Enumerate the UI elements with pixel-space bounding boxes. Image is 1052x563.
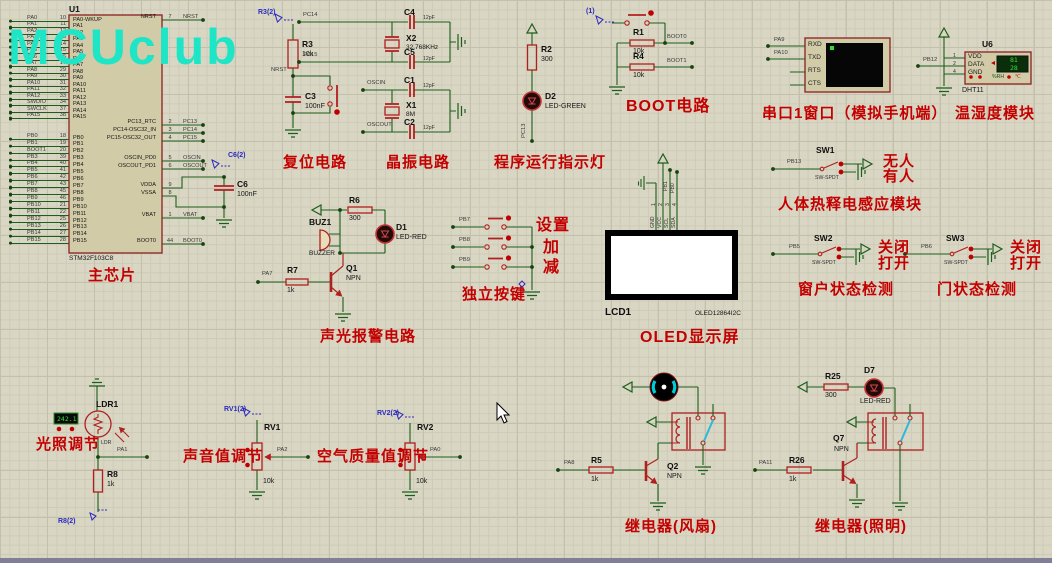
pin-number: 22	[60, 209, 66, 215]
r1-ref: R1	[633, 28, 644, 37]
pin-name-label: PB5	[73, 169, 84, 175]
pir-state-nobody: 无人	[883, 154, 915, 169]
rv2-probe-label: RV2(2)	[377, 410, 399, 417]
mcu-pin-name: PB12	[73, 218, 135, 225]
pa7-net: PA7	[262, 272, 273, 278]
pin-number: 27	[60, 230, 66, 236]
pin-net-label: PB1	[27, 140, 38, 146]
d1-ref: D1	[396, 223, 407, 232]
rv1-ref: RV1	[264, 423, 280, 432]
sw1-ref: SW1	[816, 146, 834, 155]
d1-value: LED-RED	[396, 234, 427, 241]
pa2-net: PA2	[277, 448, 288, 454]
nrst-net-label: NRST	[271, 68, 287, 74]
pin-net-label: PB10	[27, 202, 41, 208]
pb7-net: PB7	[459, 218, 470, 224]
buz1-part: BUZZER	[309, 251, 335, 258]
pin-number: 28	[60, 237, 66, 243]
pin-name-label: PB15	[73, 238, 87, 244]
c6-ref: C6	[237, 180, 248, 189]
ldr-reading: 242.1	[57, 416, 77, 423]
window-caption: 窗户状态检测	[798, 282, 894, 297]
r3-ref: R3	[302, 40, 313, 49]
pin-net-label: PB14	[27, 230, 41, 236]
mcu-right-pin-row[interactable]: PC14-OSC32_IN 3 PC14	[96, 125, 226, 133]
d2-ref: D2	[545, 92, 556, 101]
pin-name-label: PC15-OSC32_OUT	[96, 135, 156, 141]
pc15-net: PC15	[303, 53, 318, 59]
pin-name-label: PB6	[73, 176, 84, 182]
rv1-value: 10k	[263, 478, 274, 485]
dht-pin-vdd: VDD	[968, 54, 982, 61]
pin-net-label: PB5	[27, 167, 38, 173]
r6-value: 300	[349, 215, 361, 222]
pb8-net: PB8	[459, 238, 470, 244]
window-edge	[0, 558, 1052, 563]
pin-net-label: OSCOUT	[183, 163, 207, 169]
watermark-logo: MCUclub	[8, 18, 239, 76]
mcu-part: STM32F103C8	[69, 256, 113, 263]
pin-number: 26	[60, 223, 66, 229]
r4-ref: R4	[633, 52, 644, 61]
serial-pin-txd: TXD	[808, 55, 821, 62]
oscout-net: OSCOUT	[367, 123, 392, 129]
pin-net-label: SWCLK	[27, 106, 47, 112]
pb6-net: PB6	[921, 245, 932, 251]
pin-name-label: PB4	[73, 162, 84, 168]
runled-caption: 程序运行指示灯	[494, 155, 606, 170]
oled-net-pb0: PB0	[671, 183, 676, 193]
sw3-part: SW-SPDT	[944, 261, 968, 266]
dht-unit-c: ℃	[1015, 75, 1021, 80]
pin-name-label: PA14	[73, 108, 86, 114]
dht-humidity-reading: 81	[1010, 57, 1018, 64]
c5-value: 12pF	[423, 57, 435, 62]
fan-relay-caption: 继电器(风扇)	[625, 519, 717, 534]
pin-net-label: BOOT1	[27, 147, 46, 153]
serial-caption: 串口1窗口（模拟手机端）	[762, 106, 947, 121]
mcu-ref: U1	[69, 5, 80, 14]
pin-name-label: PA13	[73, 101, 86, 107]
sw3-ref: SW3	[946, 234, 964, 243]
schematic-canvas[interactable]: MCUclub U1 STM32F103C8 主芯片 PA0 10 PA1 11…	[0, 0, 1052, 563]
rv1-probe-label: RV1(2)	[224, 406, 246, 413]
d7-ref: D7	[864, 366, 875, 375]
oled-pin4-num: 4	[673, 203, 678, 206]
key-label-plus: 加	[543, 240, 560, 256]
mcu-pin-name: PB1	[73, 141, 135, 148]
pin-number: 31	[60, 80, 66, 86]
q2-ref: Q2	[667, 462, 678, 471]
serial-pin-rxd: RXD	[808, 42, 822, 49]
r4-value: 10k	[633, 72, 644, 79]
pin-number: 42	[60, 174, 66, 180]
c6-value: 100nF	[237, 191, 257, 198]
q7-value: NPN	[834, 446, 849, 453]
pin-number: 6	[163, 163, 177, 169]
keys-caption: 独立按键	[462, 287, 526, 302]
oled-part: OLED12864I2C	[695, 311, 741, 318]
mcu-pin-name: PB13	[73, 224, 135, 231]
ldr-caption: 光照调节	[36, 437, 100, 452]
pin-net-label: PB9	[27, 195, 38, 201]
pin-name-label: PB7	[73, 183, 84, 189]
dht-temperature-reading: 28	[1010, 65, 1018, 72]
u6-ref: U6	[982, 40, 993, 49]
mcu-pin-name: PB9	[73, 197, 135, 204]
dht-pin2-num: 2	[953, 62, 956, 67]
pin-net-label: PB12	[27, 216, 41, 222]
oled-pin-vcc: VCC	[658, 217, 663, 228]
pin-net-label: PA15	[27, 112, 40, 118]
r25-value: 300	[825, 392, 837, 399]
c1-ref: C1	[404, 76, 415, 85]
mcu-right-pin-row[interactable]: OSCIN_PD0 5 OSCIN	[96, 153, 226, 161]
r26-value: 1k	[789, 476, 796, 483]
pa11-net: PA11	[759, 461, 772, 467]
oled-pin-sda: SDA	[672, 217, 677, 228]
pin-name-label: PB13	[73, 224, 87, 230]
pa1-net: PA1	[117, 448, 128, 454]
x1-ref: X1	[406, 101, 416, 110]
pa10-net: PA10	[774, 51, 788, 57]
pin-net-label: PB13	[27, 223, 41, 229]
reset-circuit[interactable]	[275, 14, 340, 137]
serial-pin-cts: CTS	[808, 81, 821, 88]
pin-net-label: PB7	[27, 181, 38, 187]
c4-value: 12pF	[423, 16, 435, 21]
boot-probe-label: (1)	[586, 8, 595, 15]
oled-pin2-num: 2	[659, 203, 664, 206]
oled-pin-gnd: GND	[651, 216, 656, 228]
pin-number: 43	[60, 181, 66, 187]
pin-number: 46	[60, 195, 66, 201]
buz1-ref: BUZ1	[309, 218, 331, 227]
pin-number: 19	[60, 140, 66, 146]
window-state-open: 打开	[878, 256, 910, 271]
pin-name-label: PB14	[73, 231, 87, 237]
pin-name-label: PB0	[73, 135, 84, 141]
r8-ref: R8	[107, 470, 118, 479]
pin-number: 21	[60, 202, 66, 208]
c6-probe-label: C6(2)	[228, 152, 246, 159]
d2-value: LED-GREEN	[545, 103, 586, 110]
mcu-right-pin-row[interactable]: PC13_RTC 2 PC13	[96, 117, 226, 125]
pin-number: 44	[163, 238, 177, 244]
pin-name-label: PB2	[73, 148, 84, 154]
serial-pin-rts: RTS	[808, 68, 821, 75]
mcu-pin-name: PB5	[73, 169, 135, 176]
oled-pin-scl: SCL	[665, 218, 670, 228]
key-label-minus: 减	[543, 260, 560, 276]
door-state-closed: 关闭	[1010, 240, 1042, 255]
pin-number: 25	[60, 216, 66, 222]
r26-ref: R26	[789, 456, 805, 465]
pin-number: 34	[60, 99, 66, 105]
pin-number: 1	[163, 212, 177, 218]
pb9-net: PB9	[459, 258, 470, 264]
boot-caption: BOOT电路	[626, 99, 710, 115]
crystal-caption: 晶振电路	[386, 155, 450, 170]
oled-pin1-num: 1	[652, 203, 657, 206]
r7-value: 1k	[287, 287, 294, 294]
pin-net-label: PB8	[27, 188, 38, 194]
dht-pin-data: DATA	[968, 62, 984, 69]
light-relay-caption: 继电器(照明)	[815, 519, 907, 534]
pin-name-label: VBAT	[96, 212, 156, 218]
pa8-net: PA8	[564, 461, 575, 467]
dht-caption: 温湿度模块	[955, 106, 1035, 121]
pin-net-label: PB15	[27, 237, 41, 243]
light-relay-circuit[interactable]	[753, 379, 923, 510]
pin-number: 41	[60, 167, 66, 173]
dht-part: DHT11	[962, 87, 984, 94]
pir-caption: 人体热释电感应模块	[778, 197, 922, 212]
schematic-graphics	[0, 0, 1052, 563]
r3-probe-label: R3(2)	[258, 9, 276, 16]
r2-value: 300	[541, 56, 553, 63]
oled-net-pb1: PB1	[664, 181, 669, 191]
d7-value: LED-RED	[860, 398, 891, 405]
dht-pin4-num: 4	[953, 70, 956, 75]
pin-net-label: VBAT	[183, 212, 197, 218]
air-pot-caption: 空气质量值调节	[317, 449, 429, 464]
pin-name-label: BOOT0	[96, 238, 156, 244]
c3-value: 100nF	[305, 103, 325, 110]
pin-name-label: PB10	[73, 204, 87, 210]
door-caption: 门状态检测	[937, 282, 1017, 297]
r8-value: 1k	[107, 481, 114, 488]
pin-number: 33	[60, 93, 66, 99]
pin-number: 32	[60, 86, 66, 92]
pin-name-label: PB9	[73, 197, 84, 203]
pin-net-label: SWDIO	[27, 99, 46, 105]
pin-net-label: PB11	[27, 209, 40, 215]
dht-pin-gnd: GND	[968, 70, 982, 77]
q1-value: NPN	[346, 275, 361, 282]
pin-number: 40	[60, 160, 66, 166]
key-label-set: 设置	[536, 218, 570, 234]
pin-number: 45	[60, 188, 66, 194]
window-state-closed: 关闭	[878, 240, 910, 255]
dht-pin1-num: 1	[953, 54, 956, 59]
mcu-right-pin-row[interactable]: PC15-OSC32_OUT 4 PC15	[96, 133, 226, 141]
pb13-net: PB13	[787, 160, 801, 166]
pin-number: 4	[163, 135, 177, 141]
x2-ref: X2	[406, 34, 416, 43]
pa0-net: PA0	[430, 448, 441, 454]
ldr-part: LDR	[101, 441, 111, 446]
mcu-right-pin-row[interactable]: VBAT 1 VBAT	[96, 210, 226, 218]
pin-name-label: PB11	[73, 211, 86, 217]
pin-net-label: PB4	[27, 160, 38, 166]
pb5-net: PB5	[789, 245, 800, 251]
q2-value: NPN	[667, 473, 682, 480]
pa9-net: PA9	[774, 38, 785, 44]
pin-net-label: PB6	[27, 174, 38, 180]
pin-name-label: PA10	[73, 82, 86, 88]
c1-value: 12pF	[423, 84, 435, 89]
mcu-pin-row[interactable]: PB15 28	[10, 238, 69, 245]
pb12-net: PB12	[923, 58, 937, 64]
dht-unit-rh: %RH	[992, 75, 1004, 80]
pin-net-label: PA12	[27, 93, 40, 99]
pin-name-label: PA11	[73, 88, 86, 94]
r5-value: 1k	[591, 476, 598, 483]
r25-ref: R25	[825, 372, 841, 381]
door-state-open: 打开	[1010, 256, 1042, 271]
pin-number: 8	[163, 190, 177, 196]
pc13-net: PC13	[522, 123, 528, 138]
sw2-ref: SW2	[814, 234, 832, 243]
oled-pin3-num: 3	[666, 203, 671, 206]
pin-number: 37	[60, 106, 66, 112]
pin-name-label: PB8	[73, 190, 84, 196]
r5-ref: R5	[591, 456, 602, 465]
pin-net-label: BOOT0	[183, 238, 202, 244]
mcu-right-pin-row[interactable]: VSSA 8	[96, 188, 226, 196]
reset-caption: 复位电路	[283, 155, 347, 170]
pin-net-label: PC15	[183, 135, 197, 141]
q1-ref: Q1	[346, 264, 357, 273]
pin-number: 39	[60, 154, 66, 160]
mcu-left-pb-pins[interactable]: PB0 18 PB1 19 BOOT1 20 PB3 39 PB4 40 PB5…	[10, 135, 69, 246]
pin-name-label: OSCOUT_PD1	[96, 163, 156, 169]
pir-state-somebody: 有人	[883, 169, 915, 184]
lcd1-ref: LCD1	[605, 308, 631, 318]
mouse-cursor	[497, 403, 509, 423]
pin-name-label: PB1	[73, 141, 84, 147]
pin-number: 20	[60, 147, 66, 153]
rv2-value: 10k	[416, 478, 427, 485]
r6-ref: R6	[349, 196, 360, 205]
boot0-net: BOOT0	[667, 35, 687, 41]
rv2-ref: RV2	[417, 423, 433, 432]
sw1-part: SW-SPDT	[815, 176, 839, 181]
mcu-caption: 主芯片	[88, 268, 136, 283]
r2-ref: R2	[541, 45, 552, 54]
pin-net-label: PA10	[27, 80, 40, 86]
ldr1-ref: LDR1	[96, 400, 118, 409]
alarm-caption: 声光报警电路	[320, 329, 416, 344]
pin-name-label: PB12	[73, 218, 87, 224]
c4-ref: C4	[404, 8, 415, 17]
c3-ref: C3	[305, 92, 316, 101]
pin-name-label: PB3	[73, 155, 84, 161]
sound-pot-caption: 声音值调节	[183, 449, 263, 464]
boot-circuit[interactable]	[596, 10, 694, 94]
pin-net-label: PA11	[27, 86, 40, 92]
mcu-right-pin-row[interactable]: OSCOUT_PD1 6 OSCOUT	[96, 161, 226, 169]
boot1-net: BOOT1	[667, 59, 687, 65]
pin-number: 18	[60, 133, 66, 139]
sw2-part: SW-SPDT	[812, 261, 836, 266]
crystal-circuit[interactable]	[297, 15, 465, 139]
pin-name-label: PA15	[73, 114, 86, 120]
pin-name-label: PA12	[73, 95, 86, 101]
pin-name-label: VSSA	[96, 190, 156, 196]
mcu-right-pin-row[interactable]: VDDA 9	[96, 180, 226, 188]
c2-value: 12pF	[423, 126, 435, 131]
pin-name-label: PA9	[73, 75, 83, 81]
fan-relay-circuit[interactable]	[556, 373, 725, 510]
pc14-net: PC14	[303, 13, 318, 19]
r7-ref: R7	[287, 266, 298, 275]
c2-ref: C2	[404, 118, 415, 127]
oscin-net: OSCIN	[367, 81, 385, 87]
oled-caption: OLED显示屏	[640, 330, 739, 346]
pin-number: 38	[60, 112, 66, 118]
mcu-pin-row[interactable]: PA15 38	[10, 114, 69, 121]
mcu-right-pin-row[interactable]: BOOT0 44 BOOT0	[96, 236, 226, 244]
pin-net-label: PB0	[27, 133, 38, 139]
r8-probe-label: R8(2)	[58, 518, 76, 525]
pin-net-label: PB3	[27, 154, 38, 160]
c5-ref: C5	[404, 48, 415, 57]
q7-ref: Q7	[833, 434, 844, 443]
serial-terminal[interactable]	[766, 38, 890, 92]
